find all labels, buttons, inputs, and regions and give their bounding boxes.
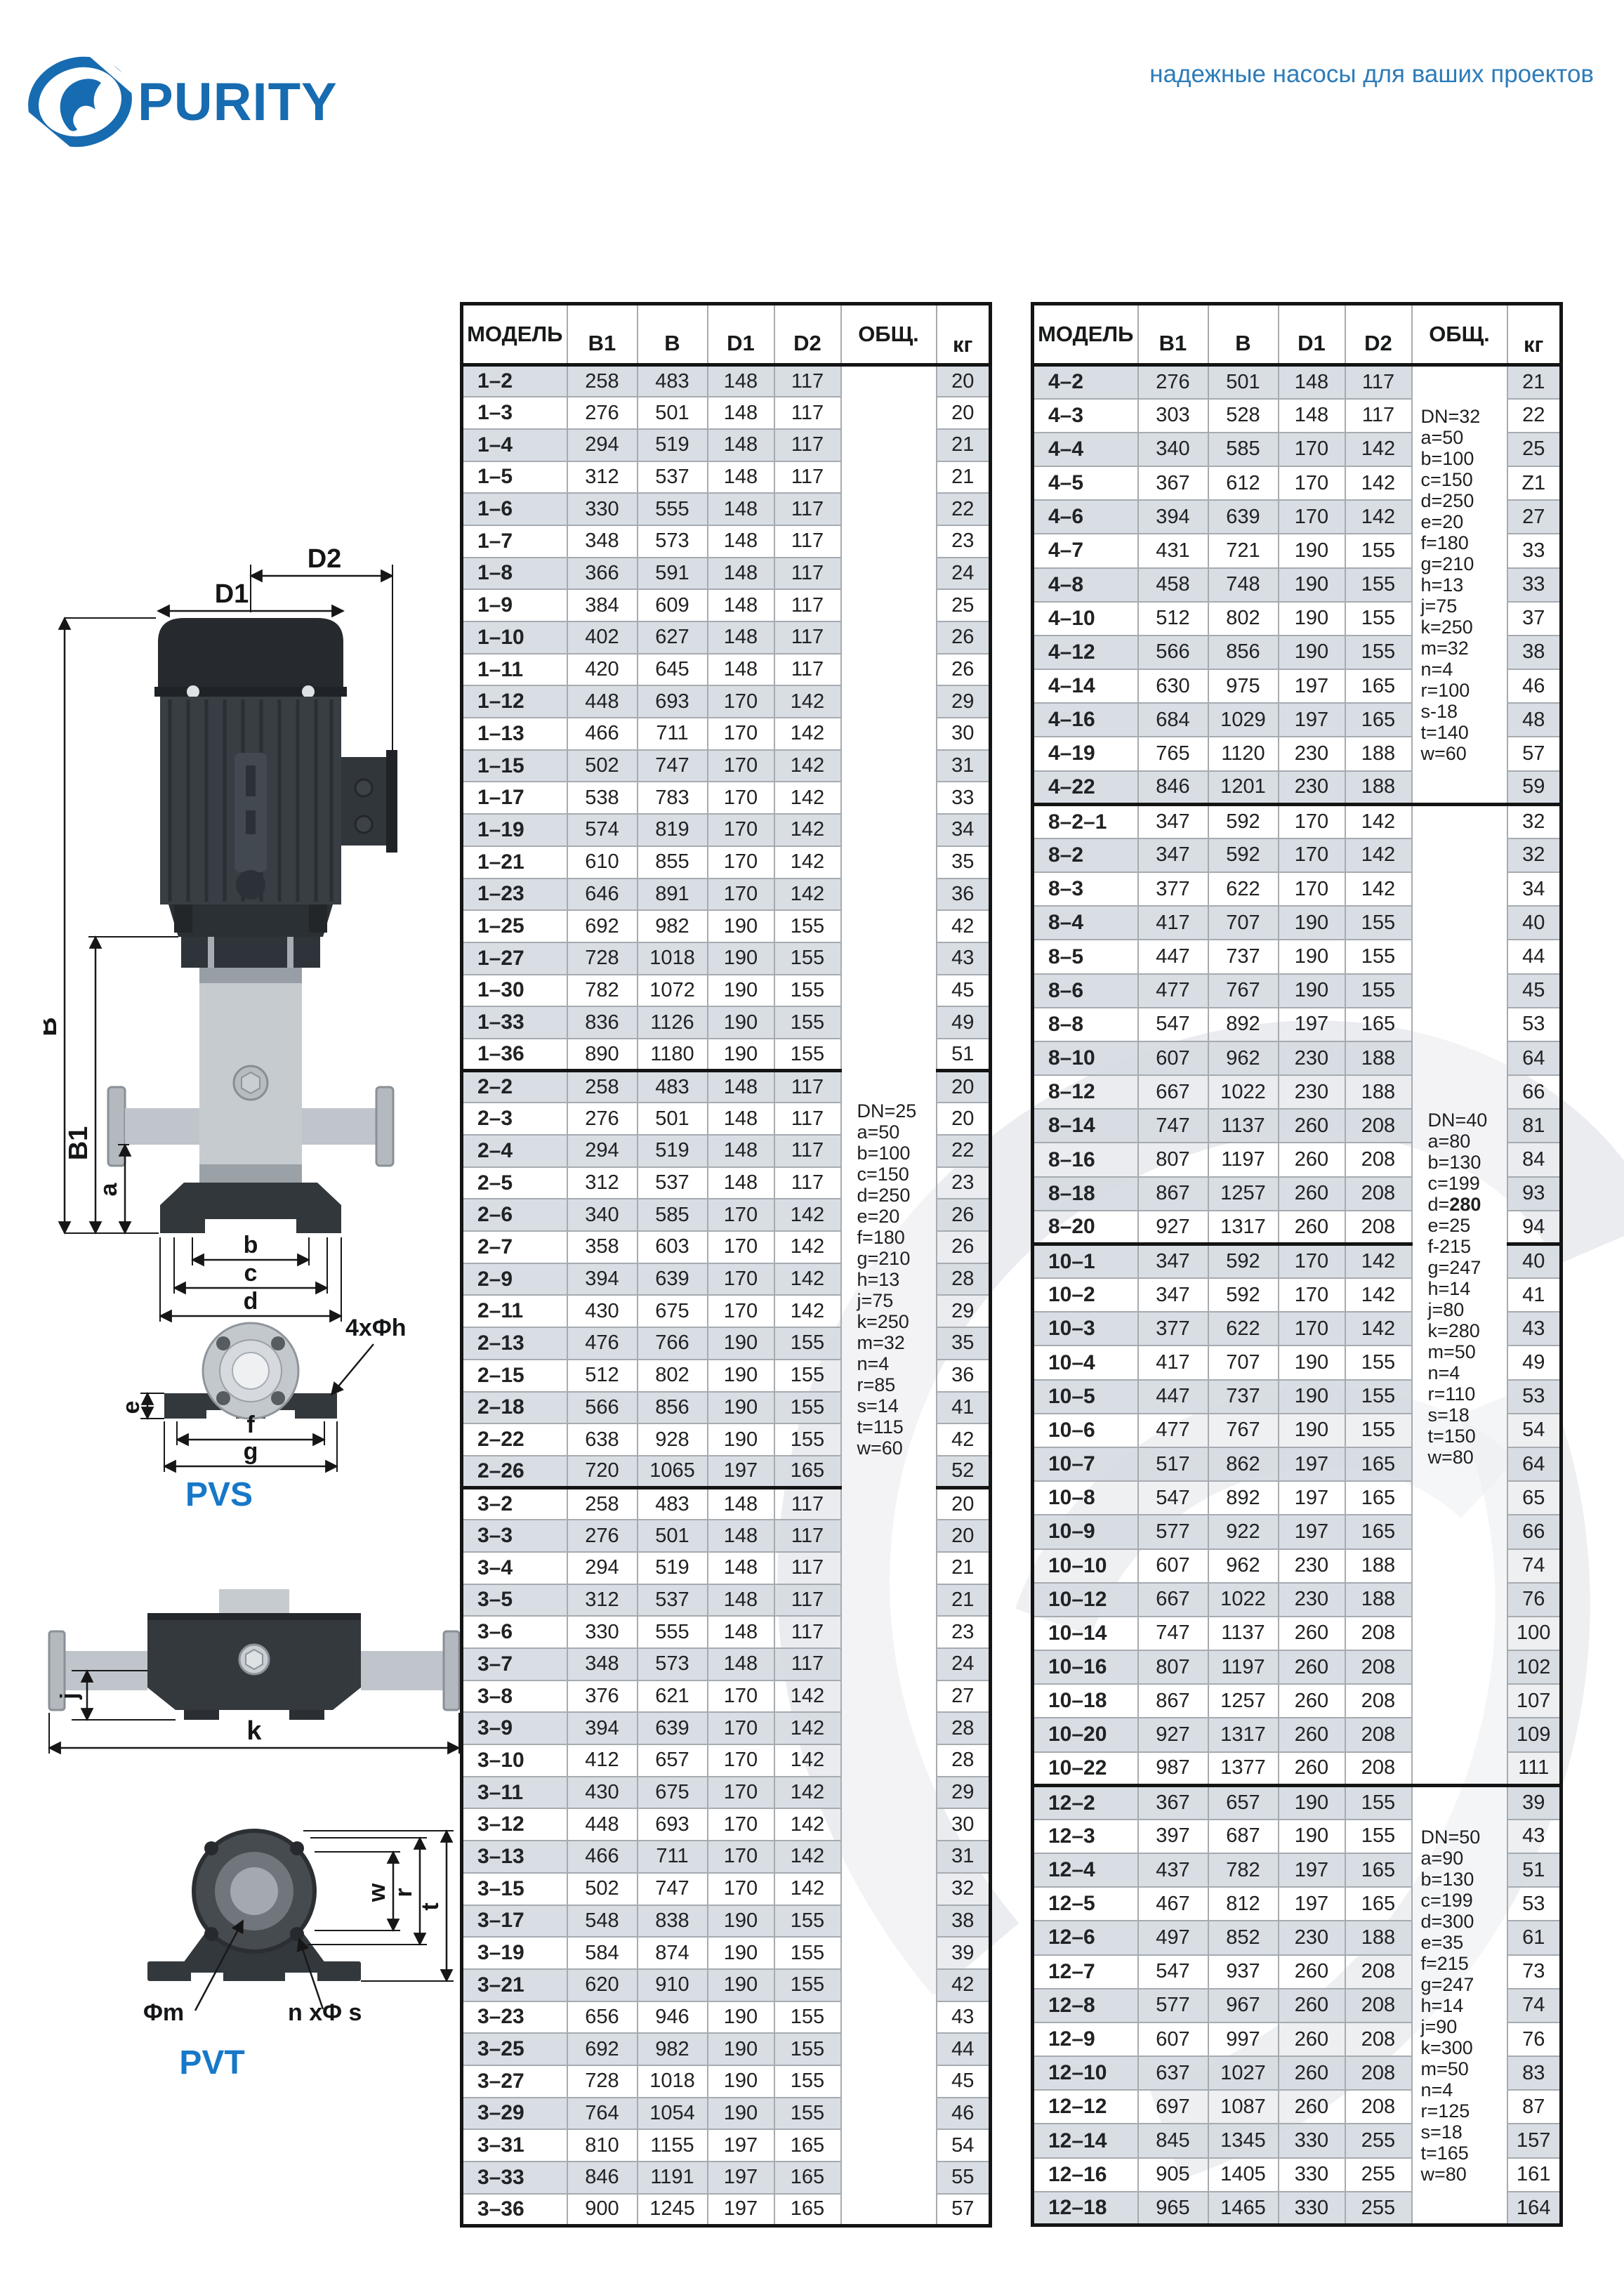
- col-header-d2: D2: [1345, 304, 1412, 365]
- weight-cell: 59: [1507, 771, 1562, 805]
- model-cell: 3–15: [462, 1873, 567, 1905]
- b-value-cell: 892: [1208, 1481, 1279, 1515]
- d1-value-cell: 230: [1279, 771, 1345, 805]
- weight-cell: 32: [1507, 805, 1562, 838]
- b-value-cell: 519: [638, 429, 708, 461]
- d2-value-cell: 208: [1345, 1955, 1412, 1989]
- model-cell: 1–19: [462, 814, 567, 846]
- d1-value-cell: 330: [1279, 2192, 1345, 2225]
- d2-value-cell: 165: [774, 1456, 841, 1488]
- common-dim-line: g=247: [1428, 1257, 1505, 1278]
- b1-value-cell: 276: [567, 1103, 638, 1135]
- col-header-model: МОДЕЛЬ: [1033, 304, 1138, 365]
- model-cell: 10–7: [1033, 1447, 1138, 1481]
- b-value-cell: 782: [1208, 1853, 1279, 1887]
- b1-value-cell: 348: [567, 1648, 638, 1680]
- d1-value-cell: 170: [1279, 500, 1345, 534]
- common-dim-line: c=199: [1428, 1173, 1505, 1194]
- weight-cell: 38: [937, 1905, 991, 1938]
- d2-value-cell: 117: [774, 1103, 841, 1135]
- b1-value-cell: 807: [1138, 1143, 1208, 1176]
- b1-value-cell: 836: [567, 1006, 638, 1039]
- weight-cell: 32: [1507, 838, 1562, 872]
- b1-value-cell: 566: [1138, 636, 1208, 669]
- model-cell: 1–21: [462, 846, 567, 879]
- model-cell: 10–8: [1033, 1481, 1138, 1515]
- model-cell: 12–16: [1033, 2158, 1138, 2192]
- d2-value-cell: 255: [1345, 2158, 1412, 2192]
- b-value-cell: 483: [638, 365, 708, 397]
- d1-value-cell: 190: [708, 1423, 774, 1456]
- model-cell: 1–4: [462, 429, 567, 461]
- b1-value-cell: 394: [567, 1263, 638, 1296]
- common-dim-line: m=32: [1421, 638, 1507, 659]
- weight-cell: 26: [937, 1199, 991, 1231]
- pvs-dim-e-label: e: [118, 1401, 145, 1414]
- d1-value-cell: 190: [708, 1937, 774, 1969]
- b-value-cell: 819: [638, 814, 708, 846]
- d1-value-cell: 148: [708, 1071, 774, 1103]
- b-value-cell: 639: [638, 1263, 708, 1296]
- weight-cell: 54: [937, 2129, 991, 2162]
- b-value-cell: 592: [1208, 805, 1279, 838]
- b-value-cell: 922: [1208, 1515, 1279, 1548]
- d1-value-cell: 197: [1279, 669, 1345, 703]
- b1-value-cell: 377: [1138, 872, 1208, 906]
- weight-cell: 61: [1507, 1921, 1562, 1954]
- b-value-cell: 591: [638, 558, 708, 590]
- common-dim-line: a=50: [1421, 427, 1507, 448]
- common-dim-line: c=199: [1421, 1890, 1507, 1911]
- common-dim-line: DN=32: [1421, 406, 1507, 427]
- model-cell: 4–6: [1033, 500, 1138, 534]
- model-cell: 10–16: [1033, 1650, 1138, 1684]
- b-value-cell: 982: [638, 2033, 708, 2065]
- model-cell: 4–22: [1033, 771, 1138, 805]
- model-cell: 10–12: [1033, 1583, 1138, 1617]
- weight-cell: 84: [1507, 1143, 1562, 1176]
- b-value-cell: 982: [638, 910, 708, 942]
- col-header-d2: D2: [774, 304, 841, 365]
- catalog-page: PURITY надежные насосы для ваших проекто…: [0, 0, 1624, 2276]
- common-dim-line: b=100: [1421, 448, 1507, 469]
- model-cell: 10–22: [1033, 1752, 1138, 1786]
- common-dim-line: g=247: [1421, 1974, 1507, 1995]
- b-value-cell: 767: [1208, 974, 1279, 1008]
- model-cell: 3–4: [462, 1552, 567, 1584]
- b-value-cell: 528: [1208, 399, 1279, 433]
- b1-value-cell: 547: [1138, 1481, 1208, 1515]
- weight-cell: 20: [937, 365, 991, 397]
- d1-value-cell: 260: [1279, 1989, 1345, 2022]
- d1-value-cell: 170: [708, 1263, 774, 1296]
- weight-cell: 25: [937, 589, 991, 621]
- weight-cell: 45: [1507, 974, 1562, 1008]
- d1-value-cell: 197: [708, 1456, 774, 1488]
- b1-value-cell: 376: [567, 1680, 638, 1713]
- model-cell: 10–3: [1033, 1312, 1138, 1346]
- d2-value-cell: 142: [774, 1744, 841, 1777]
- d2-value-cell: 188: [1345, 1921, 1412, 1954]
- pvs-right-flange: [376, 1087, 393, 1166]
- model-cell: 4–14: [1033, 669, 1138, 703]
- d2-value-cell: 165: [1345, 1008, 1412, 1041]
- b1-value-cell: 358: [567, 1231, 638, 1263]
- d1-value-cell: 148: [708, 654, 774, 686]
- weight-cell: 27: [1507, 500, 1562, 534]
- d1-value-cell: 190: [708, 1006, 774, 1039]
- b1-value-cell: 566: [567, 1392, 638, 1424]
- d1-value-cell: 197: [1279, 1515, 1345, 1548]
- d1-value-cell: 190: [1279, 602, 1345, 636]
- col-header-common: ОБЩ.: [841, 304, 937, 365]
- common-dim-line: t=140: [1421, 722, 1507, 743]
- common-dim-line: a=50: [857, 1121, 935, 1143]
- b1-value-cell: 987: [1138, 1752, 1208, 1786]
- col-header-b: B: [638, 304, 708, 365]
- common-dim-line: s=18: [1421, 2122, 1507, 2143]
- b-value-cell: 693: [638, 685, 708, 718]
- model-cell: 12–10: [1033, 2056, 1138, 2090]
- d2-value-cell: 155: [774, 2098, 841, 2130]
- b1-value-cell: 384: [567, 589, 638, 621]
- d2-value-cell: 142: [1345, 1312, 1412, 1346]
- d2-value-cell: 117: [1345, 399, 1412, 433]
- d2-value-cell: 255: [1345, 2124, 1412, 2157]
- weight-cell: 51: [937, 1039, 991, 1071]
- d1-value-cell: 148: [708, 589, 774, 621]
- weight-cell: 40: [1507, 906, 1562, 940]
- model-cell: 3–11: [462, 1777, 567, 1809]
- b-value-cell: 1022: [1208, 1075, 1279, 1109]
- weight-cell: 66: [1507, 1515, 1562, 1548]
- d1-value-cell: 170: [1279, 805, 1345, 838]
- model-cell: 12–9: [1033, 2022, 1138, 2056]
- b1-value-cell: 497: [1138, 1921, 1208, 1954]
- d2-value-cell: 117: [774, 461, 841, 494]
- b-value-cell: 501: [638, 1103, 708, 1135]
- d1-value-cell: 170: [708, 814, 774, 846]
- d2-value-cell: 155: [774, 942, 841, 975]
- pvs-title: PVS: [185, 1476, 253, 1513]
- weight-cell: 100: [1507, 1617, 1562, 1650]
- common-dim-line: h=13: [1421, 574, 1507, 596]
- d1-value-cell: 148: [708, 1648, 774, 1680]
- spec-table-right: МОДЕЛЬ B1 B D1 D2 ОБЩ. кг 4–227650114811…: [1031, 302, 1563, 2227]
- model-cell: 2–11: [462, 1295, 567, 1327]
- weight-cell: 26: [937, 1231, 991, 1263]
- b1-value-cell: 417: [1138, 1346, 1208, 1379]
- d2-value-cell: 117: [774, 493, 841, 525]
- model-cell: 8–8: [1033, 1008, 1138, 1041]
- d2-value-cell: 155: [1345, 1380, 1412, 1414]
- b-value-cell: 1022: [1208, 1583, 1279, 1617]
- model-cell: 12–8: [1033, 1989, 1138, 2022]
- pvs-dim-f-label: f: [246, 1412, 255, 1438]
- weight-cell: 20: [937, 1071, 991, 1103]
- model-cell: 10–9: [1033, 1515, 1138, 1548]
- b1-value-cell: 294: [567, 1135, 638, 1167]
- b1-value-cell: 340: [567, 1199, 638, 1231]
- weight-cell: 28: [937, 1744, 991, 1777]
- d2-value-cell: 165: [774, 2162, 841, 2194]
- d1-value-cell: 148: [708, 365, 774, 397]
- b-value-cell: 862: [1208, 1447, 1279, 1481]
- b1-value-cell: 656: [567, 2001, 638, 2034]
- b-value-cell: 856: [638, 1392, 708, 1424]
- b-value-cell: 1245: [638, 2194, 708, 2226]
- b1-value-cell: 584: [567, 1937, 638, 1969]
- d2-value-cell: 188: [1345, 1549, 1412, 1583]
- col-header-b1: B1: [567, 304, 638, 365]
- d1-value-cell: 148: [708, 397, 774, 429]
- model-cell: 4–8: [1033, 568, 1138, 602]
- d2-value-cell: 142: [1345, 433, 1412, 466]
- model-cell: 12–3: [1033, 1820, 1138, 1853]
- model-cell: 12–7: [1033, 1955, 1138, 1989]
- d2-value-cell: 142: [774, 846, 841, 879]
- b-value-cell: 975: [1208, 669, 1279, 703]
- b1-value-cell: 610: [567, 846, 638, 879]
- d2-value-cell: 142: [1345, 838, 1412, 872]
- model-cell: 4–2: [1033, 365, 1138, 399]
- d2-value-cell: 117: [1345, 365, 1412, 399]
- b-value-cell: 747: [638, 750, 708, 782]
- b1-value-cell: 607: [1138, 1549, 1208, 1583]
- d2-value-cell: 117: [774, 589, 841, 621]
- b-value-cell: 687: [1208, 1820, 1279, 1853]
- b-value-cell: 693: [638, 1808, 708, 1841]
- b-value-cell: 721: [1208, 534, 1279, 567]
- d2-value-cell: 155: [774, 1360, 841, 1392]
- common-dim-line: g=210: [857, 1248, 935, 1269]
- d1-value-cell: 197: [708, 2194, 774, 2226]
- weight-cell: 42: [937, 910, 991, 942]
- b-value-cell: 1126: [638, 1006, 708, 1039]
- d2-value-cell: 142: [774, 685, 841, 718]
- model-cell: 2–18: [462, 1392, 567, 1424]
- b-value-cell: 783: [638, 782, 708, 814]
- d2-value-cell: 142: [774, 1712, 841, 1744]
- d1-value-cell: 190: [708, 2098, 774, 2130]
- col-header-d1: D1: [1279, 304, 1345, 365]
- weight-cell: 74: [1507, 1549, 1562, 1583]
- b-value-cell: 767: [1208, 1414, 1279, 1447]
- common-dim-line: d=250: [857, 1185, 935, 1206]
- common-dims-cell: DN=40a=80b=130c=199d=280e=25f-215g=247h=…: [1412, 805, 1507, 1786]
- b1-value-cell: 927: [1138, 1718, 1208, 1751]
- b-value-cell: 910: [638, 1969, 708, 2001]
- common-dim-line: h=14: [1421, 1995, 1507, 2016]
- weight-cell: 27: [937, 1680, 991, 1713]
- d1-value-cell: 190: [708, 1360, 774, 1392]
- weight-cell: 36: [937, 879, 991, 911]
- d1-value-cell: 197: [1279, 703, 1345, 737]
- d1-value-cell: 190: [708, 942, 774, 975]
- b1-value-cell: 637: [1138, 2056, 1208, 2090]
- weight-cell: 32: [937, 1873, 991, 1905]
- d2-value-cell: 155: [774, 1392, 841, 1424]
- pvs-dim-d-label: d: [244, 1288, 258, 1315]
- b-value-cell: 1072: [638, 975, 708, 1007]
- model-cell: 8–6: [1033, 974, 1138, 1008]
- weight-cell: 23: [937, 1616, 991, 1648]
- weight-cell: 21: [937, 429, 991, 461]
- common-dim-line: e=35: [1421, 1932, 1507, 1953]
- b-value-cell: 657: [1208, 1786, 1279, 1820]
- pvt-dim-w-label: w: [364, 1883, 390, 1902]
- d2-value-cell: 155: [774, 2065, 841, 2098]
- d2-value-cell: 165: [1345, 1853, 1412, 1887]
- common-dim-line: r=110: [1428, 1383, 1505, 1405]
- b-value-cell: 573: [638, 525, 708, 558]
- model-cell: 3–2: [462, 1488, 567, 1520]
- weight-cell: 107: [1507, 1684, 1562, 1718]
- d1-value-cell: 190: [708, 2065, 774, 2098]
- common-dim-line: s-18: [1421, 701, 1507, 722]
- model-cell: 1–27: [462, 942, 567, 975]
- b1-value-cell: 367: [1138, 1786, 1208, 1820]
- b1-value-cell: 607: [1138, 2022, 1208, 2056]
- b-value-cell: 627: [638, 621, 708, 654]
- weight-cell: 22: [1507, 399, 1562, 433]
- d1-value-cell: 170: [1279, 872, 1345, 906]
- d1-value-cell: 197: [1279, 1447, 1345, 1481]
- d2-value-cell: 208: [1345, 1143, 1412, 1176]
- common-dim-line: t=150: [1428, 1426, 1505, 1447]
- b-value-cell: 555: [638, 493, 708, 525]
- b-value-cell: 855: [638, 846, 708, 879]
- b1-value-cell: 466: [567, 718, 638, 750]
- pvs-diagram: D2 D1: [44, 542, 465, 1522]
- common-dim-line: k=280: [1428, 1320, 1505, 1341]
- d1-value-cell: 230: [1279, 1041, 1345, 1075]
- b1-value-cell: 807: [1138, 1650, 1208, 1684]
- b1-value-cell: 638: [567, 1423, 638, 1456]
- d2-value-cell: 155: [1345, 602, 1412, 636]
- b1-value-cell: 437: [1138, 1853, 1208, 1887]
- common-dim-line: DN=25: [857, 1100, 935, 1121]
- weight-cell: 33: [1507, 534, 1562, 567]
- model-cell: 8–18: [1033, 1177, 1138, 1211]
- weight-cell: 49: [937, 1006, 991, 1039]
- b-value-cell: 891: [638, 879, 708, 911]
- b1-value-cell: 577: [1138, 1515, 1208, 1548]
- b-value-cell: 1257: [1208, 1684, 1279, 1718]
- weight-cell: 54: [1507, 1414, 1562, 1447]
- d2-value-cell: 155: [774, 1006, 841, 1039]
- b-value-cell: 639: [1208, 500, 1279, 534]
- d2-value-cell: 188: [1345, 771, 1412, 805]
- model-cell: 2–9: [462, 1263, 567, 1296]
- model-cell: 10–6: [1033, 1414, 1138, 1447]
- d2-value-cell: 208: [1345, 1211, 1412, 1244]
- d1-value-cell: 197: [1279, 1008, 1345, 1041]
- b1-value-cell: 430: [567, 1777, 638, 1809]
- d2-value-cell: 142: [1345, 872, 1412, 906]
- d1-value-cell: 148: [708, 429, 774, 461]
- b1-value-cell: 347: [1138, 838, 1208, 872]
- model-cell: 10–20: [1033, 1718, 1138, 1751]
- b-value-cell: 537: [638, 1167, 708, 1199]
- d2-value-cell: 142: [774, 1777, 841, 1809]
- d1-value-cell: 260: [1279, 1684, 1345, 1718]
- b1-value-cell: 420: [567, 654, 638, 686]
- d1-value-cell: 230: [1279, 1075, 1345, 1109]
- d1-value-cell: 170: [708, 1841, 774, 1873]
- d2-value-cell: 155: [1345, 534, 1412, 567]
- b1-value-cell: 417: [1138, 906, 1208, 940]
- b-value-cell: 612: [1208, 466, 1279, 500]
- b1-value-cell: 692: [567, 910, 638, 942]
- logo-icon: [27, 55, 133, 149]
- model-cell: 3–19: [462, 1937, 567, 1969]
- weight-cell: 28: [937, 1263, 991, 1296]
- d1-value-cell: 260: [1279, 1650, 1345, 1684]
- b-value-cell: 1180: [638, 1039, 708, 1071]
- weight-cell: 42: [937, 1423, 991, 1456]
- d2-value-cell: 117: [774, 525, 841, 558]
- d2-value-cell: 142: [774, 1231, 841, 1263]
- b-value-cell: 1054: [638, 2098, 708, 2130]
- d1-value-cell: 170: [1279, 838, 1345, 872]
- d1-value-cell: 170: [708, 1712, 774, 1744]
- d1-value-cell: 148: [708, 1103, 774, 1135]
- d1-value-cell: 170: [708, 1808, 774, 1841]
- d1-value-cell: 190: [708, 1905, 774, 1938]
- weight-cell: 81: [1507, 1109, 1562, 1143]
- pvs-base: [160, 1183, 341, 1219]
- d2-value-cell: 142: [774, 750, 841, 782]
- d2-value-cell: 117: [774, 1167, 841, 1199]
- b1-value-cell: 312: [567, 1584, 638, 1617]
- b1-value-cell: 447: [1138, 940, 1208, 973]
- b1-value-cell: 366: [567, 558, 638, 590]
- b-value-cell: 501: [1208, 365, 1279, 399]
- weight-cell: 23: [937, 525, 991, 558]
- d2-value-cell: 155: [774, 1327, 841, 1360]
- d1-value-cell: 170: [1279, 1278, 1345, 1312]
- b-value-cell: 1197: [1208, 1143, 1279, 1176]
- b-value-cell: 852: [1208, 1921, 1279, 1954]
- weight-cell: 49: [1507, 1346, 1562, 1379]
- weight-cell: 21: [937, 1552, 991, 1584]
- b-value-cell: 555: [638, 1616, 708, 1648]
- d2-value-cell: 142: [774, 1295, 841, 1327]
- d2-value-cell: 255: [1345, 2192, 1412, 2225]
- weight-cell: 102: [1507, 1650, 1562, 1684]
- weight-cell: 53: [1507, 1887, 1562, 1921]
- d1-value-cell: 260: [1279, 1752, 1345, 1786]
- table-row: 1–2258483148117DN=25a=50b=100c=150d=250e…: [462, 365, 991, 397]
- d2-value-cell: 208: [1345, 1617, 1412, 1650]
- d2-value-cell: 188: [1345, 1075, 1412, 1109]
- d2-value-cell: 155: [774, 975, 841, 1007]
- b-value-cell: 707: [1208, 1346, 1279, 1379]
- pvt-diagram: j k w r t Φm n xΦ s: [44, 1589, 465, 2084]
- weight-cell: 76: [1507, 2022, 1562, 2056]
- d1-value-cell: 148: [1279, 365, 1345, 399]
- b1-value-cell: 764: [567, 2098, 638, 2130]
- b1-value-cell: 867: [1138, 1177, 1208, 1211]
- pvs-dim-b1-label: B1: [64, 1126, 93, 1161]
- d2-value-cell: 165: [1345, 703, 1412, 737]
- b1-value-cell: 448: [567, 685, 638, 718]
- d2-value-cell: 165: [1345, 669, 1412, 703]
- d1-value-cell: 230: [1279, 1549, 1345, 1583]
- common-dim-line: e=20: [857, 1206, 935, 1227]
- d1-value-cell: 170: [708, 1744, 774, 1777]
